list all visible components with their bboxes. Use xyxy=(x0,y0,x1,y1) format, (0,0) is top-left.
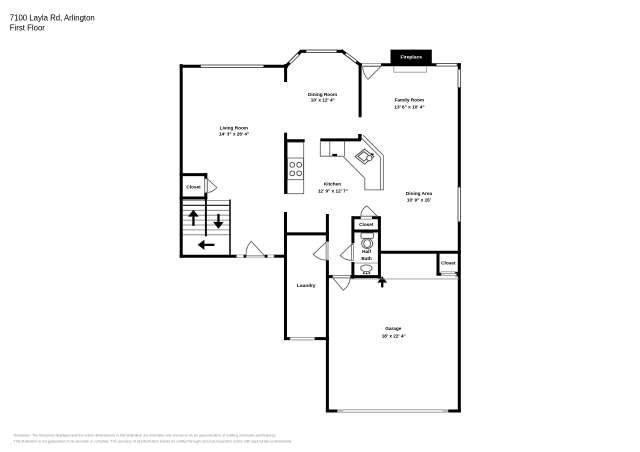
svg-text:Half: Half xyxy=(362,249,371,254)
svg-text:Laundry: Laundry xyxy=(297,283,316,288)
svg-text:18' x 22' 4": 18' x 22' 4" xyxy=(382,334,406,339)
svg-text:Dining Area: Dining Area xyxy=(406,191,433,196)
svg-text:7100 Layla Rd, Arlington: 7100 Layla Rd, Arlington xyxy=(10,14,95,23)
svg-text:13' 6" x 10' 4": 13' 6" x 10' 4" xyxy=(394,104,424,109)
svg-text:Kitchen: Kitchen xyxy=(324,182,341,187)
svg-text:Fireplace: Fireplace xyxy=(400,54,422,60)
svg-text:Bath: Bath xyxy=(361,256,372,261)
svg-text:Disclaimer: The floorplans dis: Disclaimer: The floorplans displayed and… xyxy=(14,433,277,437)
svg-text:Closet: Closet xyxy=(186,185,201,190)
svg-text:Closet: Closet xyxy=(359,222,374,227)
svg-text:Garage: Garage xyxy=(385,326,402,331)
svg-text:Closet: Closet xyxy=(441,261,456,266)
svg-text:Living Room: Living Room xyxy=(220,126,248,131)
svg-text:Family Room: Family Room xyxy=(395,98,424,103)
svg-text:12' 9" x 12' 7": 12' 9" x 12' 7" xyxy=(318,188,348,193)
svg-text:10' x 12' 4": 10' x 12' 4" xyxy=(311,98,335,103)
svg-text:Dining Room: Dining Room xyxy=(308,92,337,97)
svg-text:This illustration is not guara: This illustration is not guaranteed to b… xyxy=(14,440,293,444)
svg-text:14' 3" x 26' 4": 14' 3" x 26' 4" xyxy=(219,132,249,137)
svg-text:First Floor: First Floor xyxy=(10,24,45,33)
svg-text:10' 9" x 15': 10' 9" x 15' xyxy=(407,197,431,202)
